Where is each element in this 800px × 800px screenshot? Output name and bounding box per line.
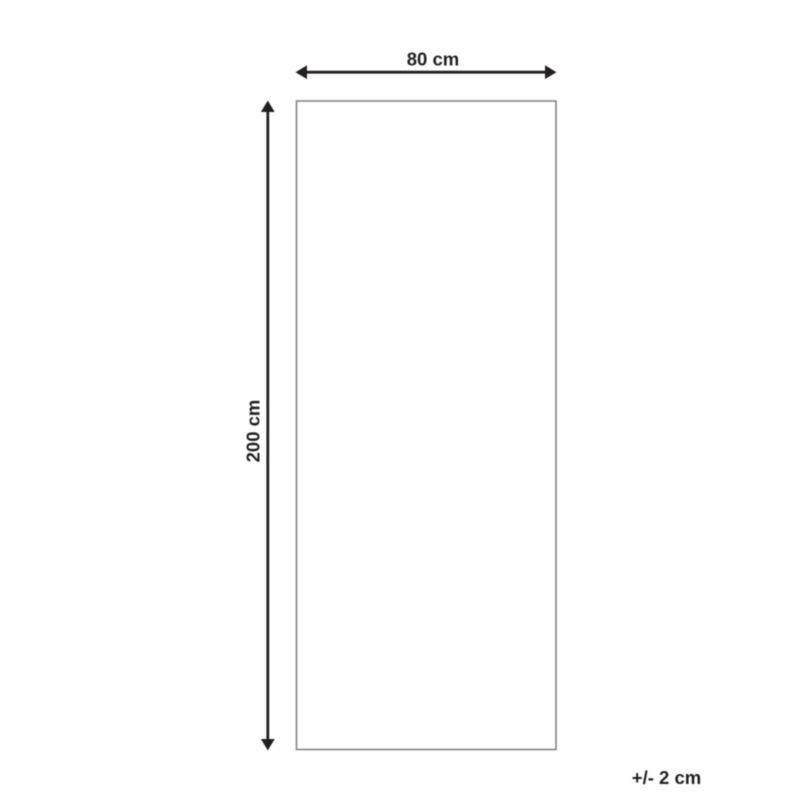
- svg-text:+/- 2 cm: +/- 2 cm: [632, 767, 701, 788]
- svg-text:200 cm: 200 cm: [242, 400, 263, 463]
- svg-text:80 cm: 80 cm: [407, 49, 459, 70]
